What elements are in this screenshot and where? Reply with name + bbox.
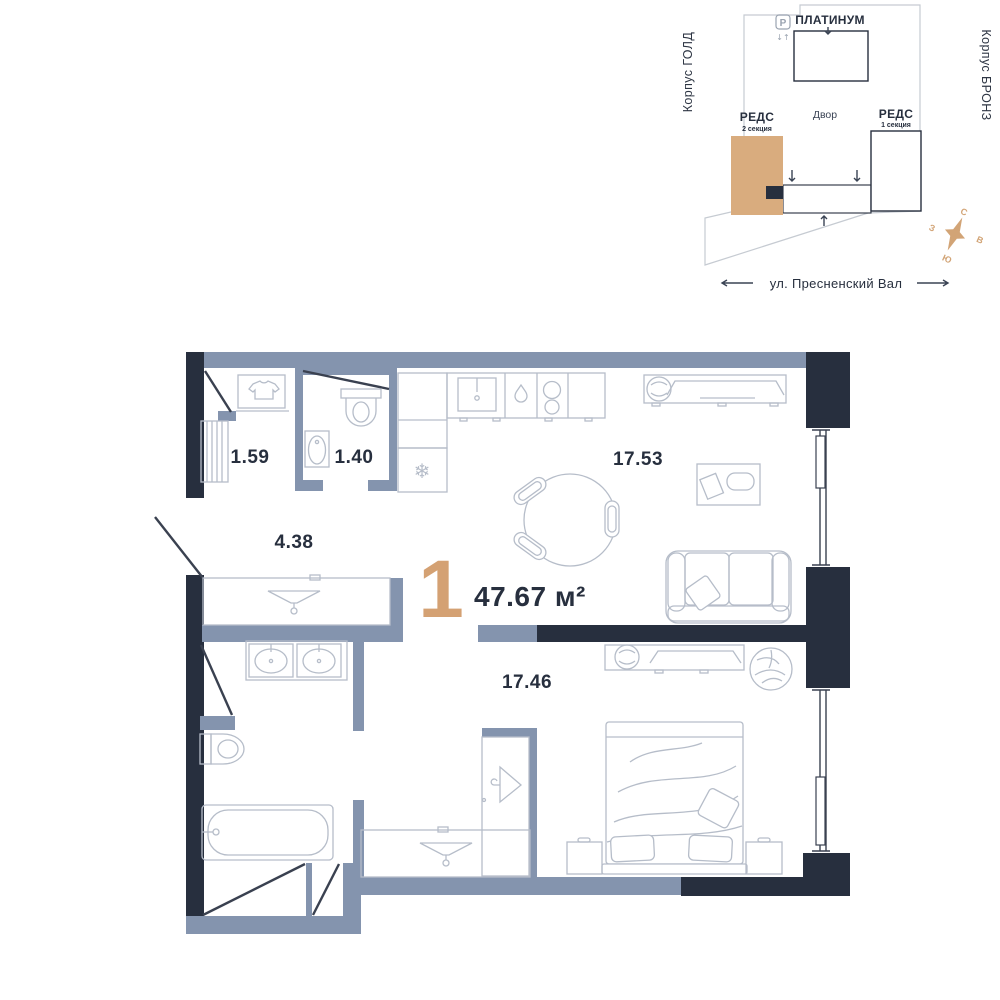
room-area-bedroom: 17.46 bbox=[502, 672, 552, 693]
plant-icon bbox=[615, 645, 639, 669]
sofa-icon bbox=[666, 551, 791, 623]
floorplan-page: ПЛАТИНУМ P ↓↑ Двор РЕДС 2 секция РЕДС 1 … bbox=[0, 0, 1000, 1000]
building-platinum bbox=[794, 31, 868, 81]
window-bedroom bbox=[812, 690, 830, 851]
nightstand-icon bbox=[567, 838, 602, 874]
bathtub-icon bbox=[202, 805, 333, 860]
desk-icon bbox=[697, 464, 760, 505]
sink-icon bbox=[305, 431, 329, 467]
hanger-icon bbox=[268, 591, 320, 603]
toilet-icon bbox=[341, 389, 381, 426]
toilet-icon bbox=[200, 734, 244, 764]
bedroom-closet-icon bbox=[482, 737, 529, 876]
dining-table-icon bbox=[511, 474, 619, 566]
compass-north: С bbox=[959, 206, 969, 218]
plant-icon bbox=[647, 377, 671, 401]
kitchen-sink-icon bbox=[458, 378, 496, 411]
reds2-label: РЕДС bbox=[740, 110, 774, 124]
compass-east: В bbox=[975, 234, 985, 246]
room-area-living: 17.53 bbox=[613, 449, 663, 470]
svg-text:↓↑: ↓↑ bbox=[776, 33, 789, 42]
hanger-icon bbox=[420, 843, 472, 855]
compass-icon: С Ю З В bbox=[927, 206, 985, 265]
room-area-bathroom: 1.40 bbox=[335, 447, 374, 468]
hanger-icon bbox=[500, 767, 521, 802]
radiator-icon bbox=[816, 777, 825, 845]
room-area-hallway: 4.38 bbox=[275, 532, 314, 553]
tv-icon bbox=[667, 381, 784, 395]
floorplan-canvas: ПЛАТИНУМ P ↓↑ Двор РЕДС 2 секция РЕДС 1 … bbox=[0, 0, 1000, 1000]
fridge-icon: ❄ bbox=[398, 448, 447, 492]
street-arrow-left bbox=[722, 280, 753, 286]
tv-console-living bbox=[644, 375, 786, 406]
reds2-section-label: 2 секция bbox=[742, 126, 772, 133]
double-sink-icon bbox=[246, 641, 347, 680]
building-reds-section1 bbox=[871, 131, 921, 211]
wardrobe-shelf-icon bbox=[236, 375, 289, 411]
stove-icon bbox=[544, 382, 561, 415]
korpus-gold-label: Корпус ГОЛД bbox=[681, 32, 695, 113]
corridor-wardrobe-icon bbox=[361, 827, 530, 877]
korpus-bronze-label: Корпус БРОНЗ bbox=[979, 29, 993, 120]
walls-dark bbox=[186, 352, 850, 934]
drying-rack-icon bbox=[201, 421, 228, 482]
lift-icon: ↓↑ bbox=[776, 33, 789, 42]
compass-west: З bbox=[927, 222, 937, 234]
building-reds-section2 bbox=[731, 136, 783, 215]
yard-label: Двор bbox=[813, 109, 837, 121]
chair-icon bbox=[605, 501, 619, 537]
parking-icon: P bbox=[776, 15, 790, 29]
bed-icon bbox=[602, 722, 747, 874]
radiator-icon bbox=[816, 436, 825, 488]
tv-icon bbox=[650, 651, 741, 663]
rooms-count-number: 1 bbox=[418, 544, 464, 635]
dishwasher-drop-icon bbox=[515, 385, 527, 402]
pillow-icon bbox=[610, 835, 654, 862]
site-minimap: ПЛАТИНУМ P ↓↑ Двор РЕДС 2 секция РЕДС 1 … bbox=[681, 5, 993, 291]
stylobate-strip bbox=[783, 185, 871, 213]
platinum-label: ПЛАТИНУМ bbox=[795, 13, 865, 27]
svg-text:❄: ❄ bbox=[414, 459, 431, 483]
monstera-plant-icon bbox=[750, 648, 792, 690]
room-area-storage: 1.59 bbox=[231, 447, 270, 468]
entrance-arrow-down-1 bbox=[789, 170, 795, 181]
total-area-label: 47.67 м² bbox=[474, 581, 586, 612]
tshirt-icon bbox=[249, 381, 279, 399]
street-label: ул. Пресненский Вал bbox=[770, 276, 902, 291]
svg-text:P: P bbox=[780, 18, 787, 29]
entrance-arrow-down-2 bbox=[854, 170, 860, 181]
compass-south: Ю bbox=[941, 253, 954, 266]
reds1-section-label: 1 секция bbox=[881, 122, 911, 129]
tv-console-bedroom bbox=[605, 645, 744, 673]
apartment-location-marker bbox=[766, 186, 783, 199]
street-arrow-right bbox=[917, 280, 948, 286]
kitchen-counter bbox=[398, 373, 605, 448]
entrance-door-swing bbox=[155, 517, 203, 578]
hallway-wardrobe-icon bbox=[203, 575, 390, 625]
reds1-label: РЕДС bbox=[879, 107, 913, 121]
pillow-icon bbox=[688, 835, 732, 862]
nightstand-icon bbox=[746, 838, 782, 874]
window-living bbox=[812, 430, 830, 565]
entrance-arrow-up bbox=[821, 216, 827, 226]
apartment-floor-plan: ❄ bbox=[155, 352, 850, 934]
